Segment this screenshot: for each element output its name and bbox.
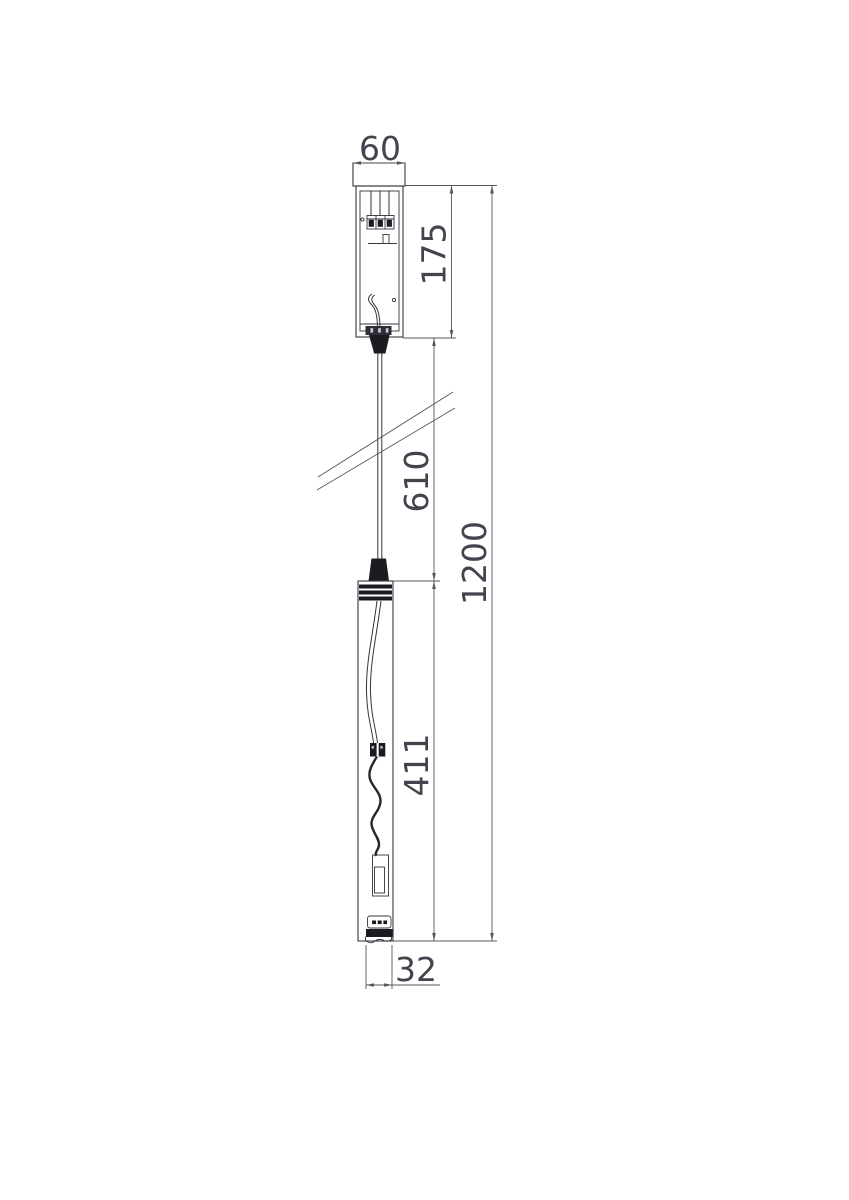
dimension-60: 60: [353, 129, 405, 168]
arrow-down-icon: [450, 330, 454, 338]
tube-top-bands: [359, 585, 392, 601]
dim-label-canopy-width: 60: [359, 129, 401, 168]
dim-label-canopy-height: 175: [415, 223, 454, 286]
arrow-up-icon: [450, 186, 454, 194]
lamp-body: [358, 559, 393, 943]
dim-label-overall-height: 1200: [455, 521, 494, 605]
terminal-block: [367, 216, 394, 230]
led-driver: [373, 855, 389, 896]
dimension-610: 610: [397, 338, 436, 581]
dim-label-body-diameter: 32: [395, 950, 437, 989]
arrow-left-icon: [366, 983, 374, 987]
arrow-up-icon: [432, 338, 436, 346]
ceiling-canopy: [353, 163, 405, 354]
dimension-1200: 1200: [455, 186, 494, 942]
product-label: [368, 916, 392, 928]
arrow-down-icon: [432, 933, 436, 941]
arrow-down-icon: [432, 573, 436, 581]
arrow-right-icon: [384, 983, 392, 987]
tube-internal-wires: [366, 601, 381, 743]
dim-label-suspension-length: 610: [397, 450, 436, 513]
bottom-cap: [366, 937, 392, 943]
collar-notch: [386, 328, 389, 332]
supply-wires: [371, 191, 389, 216]
wire-connector: [370, 743, 385, 757]
dim-label-body-length: 411: [397, 734, 436, 797]
arrow-down-icon: [490, 933, 494, 941]
drawing-canvas: 60 175 610 411: [0, 0, 849, 1200]
dimension-411: 411: [397, 581, 436, 941]
twisted-wire: [369, 757, 380, 857]
canopy-internal-wire: [369, 294, 381, 326]
pendant-lamp-dimension-drawing: 60 175 610 411: [0, 0, 849, 1200]
canopy-screw-hole-left: [361, 218, 364, 221]
suspension-cable: [378, 354, 382, 559]
cord-grip-cone: [369, 335, 390, 354]
arrow-up-icon: [432, 581, 436, 589]
collar-notch: [371, 328, 374, 332]
mounting-bracket: [368, 235, 397, 244]
arrow-up-icon: [490, 186, 494, 194]
lamp-cord-grip: [369, 559, 390, 582]
canopy-screw-hole-right: [392, 298, 395, 301]
dimension-175: 175: [415, 186, 454, 339]
bottom-band: [366, 929, 393, 937]
collar-notch: [378, 328, 381, 332]
dimension-32: 32: [366, 945, 440, 989]
